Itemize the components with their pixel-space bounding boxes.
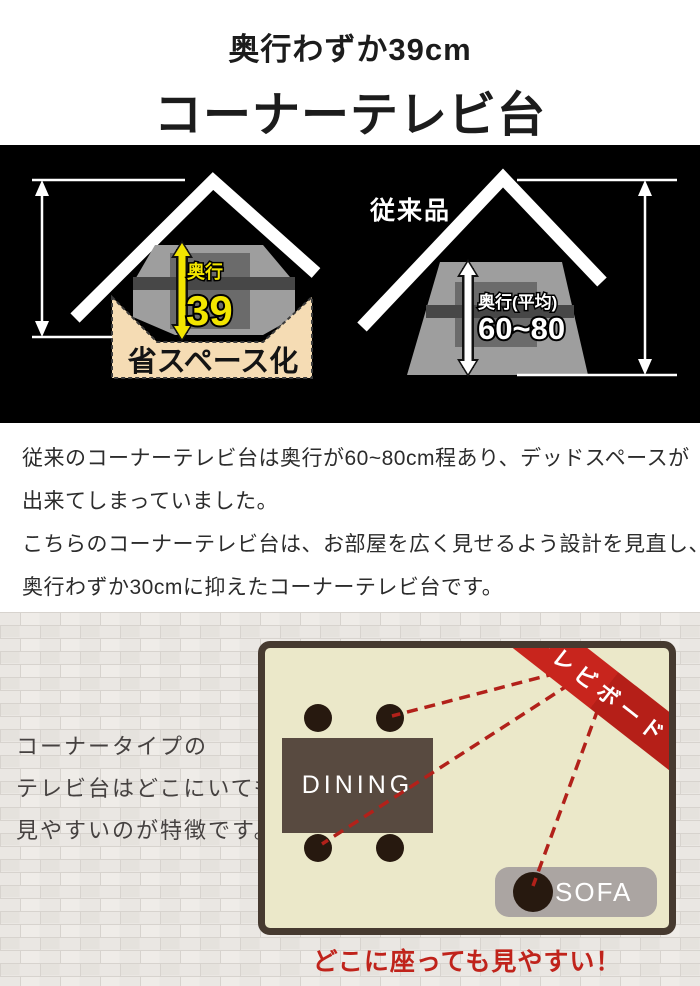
product-infographic: 奥行わずか39cm コーナーテレビ台 省スペース化	[0, 0, 700, 986]
description-line: こちらのコーナーテレビ台は、お部屋を広く見せるよう設計を見直し、	[22, 523, 700, 566]
room-interior: DINING SOFA テレビボード	[265, 648, 669, 928]
page-title: コーナーテレビ台	[0, 69, 700, 145]
arrowhead-up-icon	[638, 180, 652, 196]
conventional-label: 従来品	[369, 196, 451, 225]
depth-subtitle: 奥行わずか39cm	[0, 0, 700, 69]
side-text-line: コーナータイプの	[16, 726, 278, 768]
depth-label: 奥行(平均)	[478, 292, 557, 312]
new-product-diagram: 省スペース化 奥行 39	[32, 180, 316, 378]
room-floorplan: DINING SOFA テレビボード	[258, 641, 676, 935]
description-section: 従来のコーナーテレビ台は奥行が60~80cm程あり、デッドスペースが 出来てしま…	[0, 423, 700, 612]
side-text-line: テレビ台はどこにいても	[16, 768, 278, 810]
sightline-dashed	[533, 709, 598, 886]
arrowhead-up-icon	[35, 180, 49, 196]
conventional-diagram: 従来品 奥行(平均) 60~80	[362, 178, 677, 377]
side-text-line: 見やすいのが特徴です。	[16, 810, 278, 852]
depth-label: 奥行	[187, 261, 223, 282]
floorplan-section: コーナータイプの テレビ台はどこにいても 見やすいのが特徴です。 DINING …	[0, 612, 700, 986]
saved-space-label: 省スペース化	[128, 345, 299, 378]
arrowhead-down-icon	[35, 321, 49, 337]
description-line: 奥行わずか30cmに抑えたコーナーテレビ台です。	[22, 566, 700, 609]
depth-comparison-section: 省スペース化 奥行 39 従来品	[0, 145, 700, 423]
depth-value: 60~80	[478, 311, 565, 346]
arrowhead-down-icon	[638, 359, 652, 375]
depth-value: 39	[186, 287, 233, 334]
side-text: コーナータイプの テレビ台はどこにいても 見やすいのが特徴です。	[16, 726, 278, 852]
sightline-dashed	[322, 684, 570, 844]
description-line: 従来のコーナーテレビ台は奥行が60~80cm程あり、デッドスペースが	[22, 437, 700, 480]
header-section: 奥行わずか39cm コーナーテレビ台	[0, 0, 700, 145]
comparison-diagram: 省スペース化 奥行 39 従来品	[0, 145, 700, 423]
floorplan-caption: どこに座っても見やすい！	[258, 942, 676, 978]
description-line: 出来てしまっていました。	[22, 480, 700, 523]
